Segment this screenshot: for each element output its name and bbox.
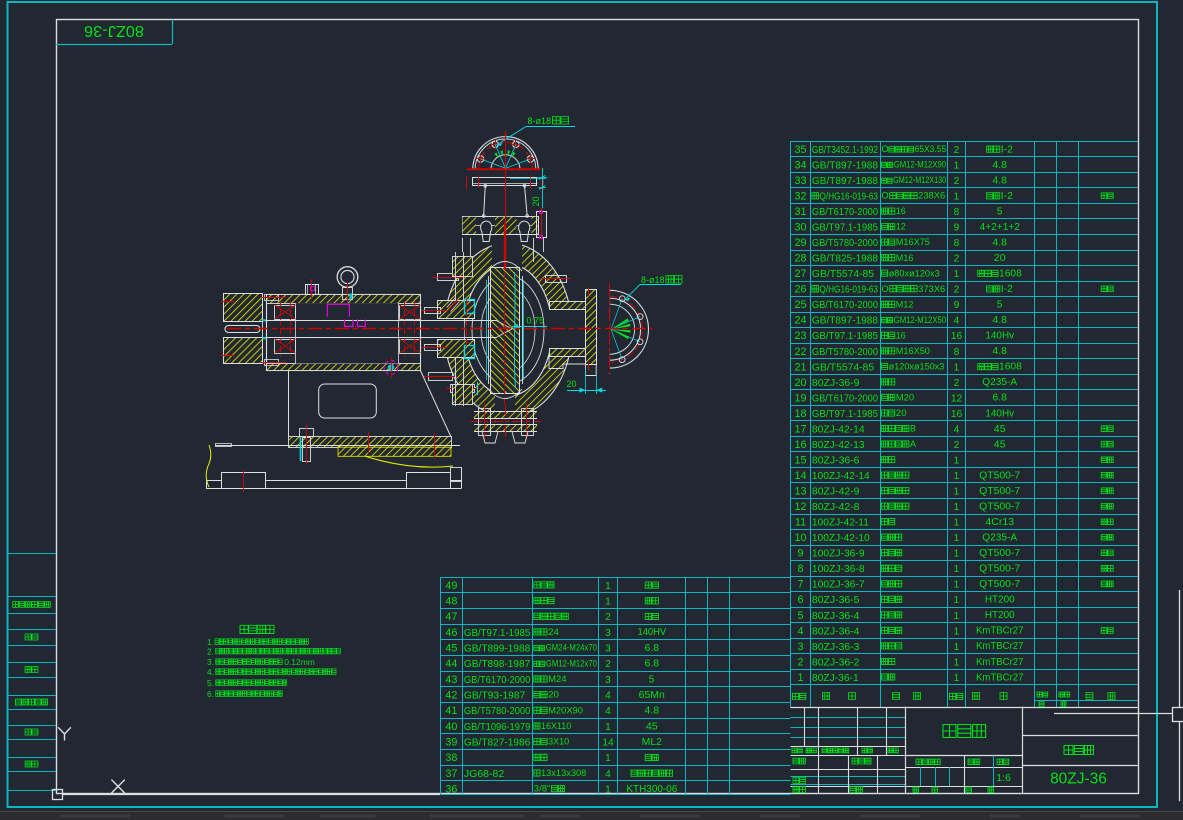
svg-text:1: 1 <box>954 533 960 544</box>
svg-text:16: 16 <box>896 330 906 340</box>
svg-text:3/8": 3/8" <box>534 784 551 794</box>
svg-text:Q235-A: Q235-A <box>982 377 1017 388</box>
svg-text:1.: 1. <box>207 637 214 647</box>
svg-text:1: 1 <box>954 564 960 575</box>
svg-text:45: 45 <box>646 721 658 732</box>
svg-text:16: 16 <box>951 409 963 420</box>
svg-text:1: 1 <box>954 269 960 280</box>
svg-text:1: 1 <box>954 642 960 653</box>
svg-text:QT500-7: QT500-7 <box>979 579 1020 590</box>
svg-text:KmTBCr27: KmTBCr27 <box>976 626 1024 637</box>
svg-text:25: 25 <box>794 299 806 311</box>
svg-text:4.8: 4.8 <box>992 160 1007 171</box>
svg-text:12: 12 <box>794 501 806 513</box>
svg-text:6.8: 6.8 <box>992 393 1007 404</box>
svg-text:11: 11 <box>795 517 806 529</box>
svg-text:80ZJ-36-3: 80ZJ-36-3 <box>812 642 860 653</box>
svg-text:1: 1 <box>605 597 611 608</box>
svg-text:GB/T97.1-1985: GB/T97.1-1985 <box>812 409 878 420</box>
svg-text:65Mn: 65Mn <box>639 690 665 701</box>
svg-text:QT500-7: QT500-7 <box>979 470 1020 481</box>
svg-text:Q/HG16-019-63: Q/HG16-019-63 <box>819 285 878 296</box>
svg-text:80ZJ-36-4: 80ZJ-36-4 <box>812 626 860 637</box>
svg-text:GB/T6170-2000: GB/T6170-2000 <box>464 675 531 686</box>
svg-text:4: 4 <box>954 316 960 327</box>
svg-text:O: O <box>882 284 889 294</box>
svg-text:20: 20 <box>794 377 806 389</box>
svg-text:B: B <box>910 424 916 434</box>
svg-text:GB/T97.1-1985: GB/T97.1-1985 <box>812 331 878 342</box>
svg-text:32: 32 <box>794 191 806 203</box>
svg-text:36: 36 <box>445 784 457 796</box>
svg-text:49: 49 <box>445 580 457 592</box>
svg-text:GB/T1096-1979: GB/T1096-1979 <box>464 722 531 733</box>
svg-text:GB/T5574-85: GB/T5574-85 <box>812 362 875 373</box>
svg-text:8-ø18: 8-ø18 <box>528 116 552 126</box>
svg-text:QT500-7: QT500-7 <box>979 486 1020 497</box>
svg-text:41: 41 <box>445 705 457 717</box>
svg-text:45: 45 <box>445 643 457 655</box>
svg-text:9: 9 <box>954 223 960 234</box>
svg-text:GB/T97.1-1985: GB/T97.1-1985 <box>812 223 878 234</box>
svg-text:JG68-82: JG68-82 <box>464 769 505 780</box>
svg-text:100ZJ-36-9: 100ZJ-36-9 <box>812 549 865 560</box>
svg-text:9: 9 <box>797 548 803 560</box>
svg-text:80ZJ-36-2: 80ZJ-36-2 <box>812 657 860 668</box>
svg-text:6.8: 6.8 <box>645 643 660 654</box>
svg-text:1: 1 <box>954 580 960 591</box>
svg-text:4.8: 4.8 <box>992 315 1007 326</box>
svg-text:3.: 3. <box>207 657 214 667</box>
svg-text:40: 40 <box>445 721 457 733</box>
svg-text:80ZJ-42-8: 80ZJ-42-8 <box>812 502 860 513</box>
svg-text:80ZJ-42-14: 80ZJ-42-14 <box>812 424 865 435</box>
svg-text:45: 45 <box>994 424 1006 435</box>
svg-text:GB/T5780-2000: GB/T5780-2000 <box>812 347 878 358</box>
svg-text:4+2+1+2: 4+2+1+2 <box>980 222 1021 233</box>
svg-text:4: 4 <box>797 625 803 637</box>
svg-text:4: 4 <box>605 706 611 717</box>
svg-text:1: 1 <box>954 626 960 637</box>
svg-text:46: 46 <box>445 627 457 639</box>
svg-text:A: A <box>910 439 917 449</box>
svg-text:8: 8 <box>954 347 960 358</box>
svg-text:14: 14 <box>602 738 614 749</box>
svg-text:GB/T5780-2000: GB/T5780-2000 <box>812 238 878 249</box>
svg-text:20: 20 <box>896 408 907 418</box>
svg-text:4.8: 4.8 <box>992 175 1007 186</box>
svg-text:1: 1 <box>605 785 611 796</box>
svg-text:33: 33 <box>794 175 806 187</box>
svg-text:QT500-7: QT500-7 <box>979 502 1020 513</box>
svg-text:27: 27 <box>794 268 806 280</box>
svg-text:10: 10 <box>794 532 806 544</box>
svg-text:1: 1 <box>954 487 960 498</box>
svg-text:3: 3 <box>605 628 611 639</box>
svg-text:1: 1 <box>605 581 611 592</box>
svg-text:1608: 1608 <box>999 362 1022 373</box>
svg-text:3: 3 <box>797 641 803 653</box>
svg-text:2: 2 <box>954 145 960 156</box>
svg-text:4.8: 4.8 <box>992 237 1007 248</box>
svg-text:O: O <box>882 191 889 201</box>
svg-text:GB/T897-1988: GB/T897-1988 <box>812 176 878 187</box>
svg-text:GB/T827-1986: GB/T827-1986 <box>464 738 531 749</box>
svg-text:1: 1 <box>954 160 960 171</box>
svg-text:QT500-7: QT500-7 <box>979 548 1020 559</box>
svg-text:38: 38 <box>445 752 457 764</box>
svg-text:GB/T825-1988: GB/T825-1988 <box>812 254 878 265</box>
svg-text:4: 4 <box>605 691 611 702</box>
svg-text:GB/T899-1988: GB/T899-1988 <box>464 644 531 655</box>
svg-text:M20X90: M20X90 <box>548 705 583 715</box>
svg-text:4.8: 4.8 <box>645 706 660 717</box>
svg-text:I-2: I-2 <box>1001 191 1013 202</box>
svg-text:M12: M12 <box>896 299 914 309</box>
svg-text:ø80xø120x3: ø80xø120x3 <box>889 268 940 278</box>
svg-text:KTH300-06: KTH300-06 <box>626 784 677 795</box>
svg-text:8: 8 <box>954 238 960 249</box>
svg-text:14: 14 <box>794 470 806 482</box>
svg-text:1: 1 <box>797 672 803 684</box>
svg-text:3: 3 <box>605 644 611 655</box>
svg-text:I-2: I-2 <box>1001 284 1013 295</box>
svg-text:O: O <box>882 144 889 154</box>
svg-text:HT200: HT200 <box>985 610 1015 621</box>
svg-text:GB/T97.1-1985: GB/T97.1-1985 <box>464 628 531 639</box>
svg-text:0.75: 0.75 <box>527 316 545 326</box>
svg-text:1: 1 <box>954 518 960 529</box>
svg-text:12: 12 <box>951 393 963 404</box>
svg-text:15: 15 <box>794 455 806 467</box>
svg-text:2: 2 <box>797 656 803 668</box>
svg-text:80ZJ-36-9: 80ZJ-36-9 <box>812 378 860 389</box>
svg-text:37: 37 <box>445 768 457 780</box>
svg-text:23: 23 <box>794 330 806 342</box>
svg-text:M16X75: M16X75 <box>896 237 930 247</box>
svg-text:100ZJ-36-7: 100ZJ-36-7 <box>812 580 865 591</box>
svg-text:65X3.55: 65X3.55 <box>915 144 947 154</box>
svg-text:4Cr13: 4Cr13 <box>985 517 1014 528</box>
svg-text:1: 1 <box>954 502 960 513</box>
svg-text:M16X50: M16X50 <box>896 346 930 356</box>
svg-text:45: 45 <box>994 439 1006 450</box>
svg-text:9: 9 <box>954 300 960 311</box>
svg-text:5: 5 <box>997 206 1003 217</box>
svg-text:8-ø18: 8-ø18 <box>641 275 665 285</box>
svg-text:1:6: 1:6 <box>996 772 1011 784</box>
svg-text:17: 17 <box>794 423 806 435</box>
svg-text:42: 42 <box>445 690 457 702</box>
svg-text:43: 43 <box>445 674 457 686</box>
svg-text:1: 1 <box>954 192 960 203</box>
svg-text:140Hv: 140Hv <box>985 331 1015 342</box>
svg-text:80ZJ-42-13: 80ZJ-42-13 <box>812 440 865 451</box>
svg-text:6.: 6. <box>207 689 214 699</box>
svg-text:21: 21 <box>794 361 806 373</box>
svg-text:80ZJ-36-6: 80ZJ-36-6 <box>812 456 860 467</box>
svg-text:20: 20 <box>567 379 577 389</box>
svg-text:1: 1 <box>954 673 960 684</box>
svg-text:GB/T897-1988: GB/T897-1988 <box>812 316 878 327</box>
svg-text:80ZJ-42-9: 80ZJ-42-9 <box>812 487 860 498</box>
svg-text:2: 2 <box>605 659 611 670</box>
svg-text:GM12-M12X130: GM12-M12X130 <box>893 175 946 185</box>
svg-text:28: 28 <box>794 253 806 265</box>
svg-text:30: 30 <box>794 222 806 234</box>
svg-text:GB/T3452.1-1992: GB/T3452.1-1992 <box>812 145 878 156</box>
svg-text:1: 1 <box>954 611 960 622</box>
svg-text:2: 2 <box>954 254 960 265</box>
svg-text:M24: M24 <box>548 674 566 684</box>
svg-text:1: 1 <box>954 471 960 482</box>
svg-text:M20: M20 <box>896 393 914 403</box>
svg-text:16: 16 <box>896 206 906 216</box>
svg-text:24: 24 <box>548 627 559 637</box>
svg-text:KmTBCr27: KmTBCr27 <box>976 657 1024 668</box>
svg-text:13: 13 <box>794 486 806 498</box>
svg-text:20: 20 <box>531 196 541 206</box>
svg-text:24: 24 <box>794 315 806 327</box>
svg-text:GB/T6170-2000: GB/T6170-2000 <box>812 300 878 311</box>
svg-text:12: 12 <box>896 222 906 232</box>
svg-text:16: 16 <box>951 331 963 342</box>
svg-text:29: 29 <box>794 237 806 249</box>
svg-text:2: 2 <box>605 612 611 623</box>
svg-text:4: 4 <box>605 769 611 780</box>
svg-text:100ZJ-42-11: 100ZJ-42-11 <box>812 518 869 529</box>
svg-text:8: 8 <box>954 207 960 218</box>
svg-text:GB/T5780-2000: GB/T5780-2000 <box>464 706 531 717</box>
svg-text:2: 2 <box>954 176 960 187</box>
svg-text:80ZJ-36-4: 80ZJ-36-4 <box>812 611 860 622</box>
svg-text:2: 2 <box>954 378 960 389</box>
svg-text:22: 22 <box>794 346 806 358</box>
svg-text:3X10: 3X10 <box>548 737 569 747</box>
svg-text:ML2: ML2 <box>642 737 663 748</box>
svg-text:48: 48 <box>445 596 457 608</box>
svg-text:100ZJ-36-8: 100ZJ-36-8 <box>812 564 865 575</box>
svg-text:35: 35 <box>794 144 806 156</box>
svg-text:GM12-M12X90: GM12-M12X90 <box>894 160 946 170</box>
svg-text:4.8: 4.8 <box>992 346 1007 357</box>
svg-text:80ZJ-36: 80ZJ-36 <box>1050 771 1107 788</box>
svg-text:GB/T898-1987: GB/T898-1987 <box>464 659 531 670</box>
svg-text:20: 20 <box>548 690 559 700</box>
svg-text:1: 1 <box>605 753 611 764</box>
svg-text:GM12-M12x70: GM12-M12x70 <box>546 658 597 668</box>
svg-text:QT500-7: QT500-7 <box>979 564 1020 575</box>
svg-text:GB/T6170-2000: GB/T6170-2000 <box>812 393 878 404</box>
svg-text:4: 4 <box>954 424 960 435</box>
svg-text:GB/T5574-85: GB/T5574-85 <box>812 269 875 280</box>
svg-text:ø120xø150x3: ø120xø150x3 <box>889 362 945 372</box>
svg-text:KmTBCr27: KmTBCr27 <box>976 641 1024 652</box>
svg-text:4.: 4. <box>207 667 214 677</box>
svg-text:140HV: 140HV <box>638 627 667 638</box>
svg-text:I-2: I-2 <box>1001 144 1013 155</box>
svg-text:373X6: 373X6 <box>918 284 945 294</box>
svg-text:80ZJ-36-1: 80ZJ-36-1 <box>812 673 859 684</box>
svg-text:2: 2 <box>954 285 960 296</box>
svg-text:GB/T6170-2000: GB/T6170-2000 <box>812 207 878 218</box>
svg-text:GB/T897-1988: GB/T897-1988 <box>812 160 878 171</box>
svg-text:HT200: HT200 <box>985 595 1015 606</box>
svg-text:8: 8 <box>797 563 803 575</box>
svg-text:Q/HG16-019-63: Q/HG16-019-63 <box>819 192 878 203</box>
svg-text:1: 1 <box>605 722 611 733</box>
svg-text:19: 19 <box>794 392 806 404</box>
svg-text:5: 5 <box>797 610 803 622</box>
svg-text:1: 1 <box>954 595 960 606</box>
svg-text:100ZJ-42-14: 100ZJ-42-14 <box>812 471 870 482</box>
svg-text:1608: 1608 <box>999 269 1022 280</box>
svg-text:5: 5 <box>649 674 655 685</box>
svg-text:GM12-M12X50: GM12-M12X50 <box>894 315 946 325</box>
svg-text:5: 5 <box>997 300 1003 311</box>
svg-text:13x13x308: 13x13x308 <box>541 768 586 778</box>
svg-text:5.: 5. <box>207 678 214 688</box>
svg-text:238X6: 238X6 <box>918 191 945 201</box>
svg-text:16X110: 16X110 <box>541 721 571 731</box>
svg-text:1: 1 <box>954 549 960 560</box>
svg-text:Q235-A: Q235-A <box>982 533 1017 544</box>
svg-text:39: 39 <box>445 737 457 749</box>
svg-text:KmTBCr27: KmTBCr27 <box>976 672 1024 683</box>
svg-text:GB/T93-1987: GB/T93-1987 <box>464 691 526 702</box>
svg-text:GM24-M24x70: GM24-M24x70 <box>546 643 597 653</box>
svg-text:47: 47 <box>445 611 457 623</box>
svg-text:80ZJ-36-5: 80ZJ-36-5 <box>812 595 860 606</box>
svg-text:140Hv: 140Hv <box>985 408 1015 419</box>
svg-text:1: 1 <box>954 657 960 668</box>
svg-text:20: 20 <box>994 253 1006 264</box>
svg-text:2: 2 <box>954 440 960 451</box>
svg-text:44: 44 <box>445 658 457 670</box>
svg-text:80ZJ-36: 80ZJ-36 <box>84 22 144 39</box>
svg-text:16: 16 <box>794 439 806 451</box>
svg-text:7: 7 <box>797 579 803 591</box>
svg-text:0.12mm: 0.12mm <box>284 657 315 667</box>
svg-text:18: 18 <box>794 408 806 420</box>
svg-text:6: 6 <box>797 594 803 606</box>
svg-text:26: 26 <box>794 284 806 296</box>
svg-text:6.8: 6.8 <box>645 659 660 670</box>
svg-text:100ZJ-42-10: 100ZJ-42-10 <box>812 533 870 544</box>
svg-text:34: 34 <box>794 159 806 171</box>
svg-text:2.: 2. <box>207 647 214 657</box>
svg-text:1: 1 <box>954 456 960 467</box>
svg-text:M16: M16 <box>896 253 914 263</box>
svg-text:1: 1 <box>954 362 960 373</box>
svg-text:3: 3 <box>605 675 611 686</box>
svg-text:31: 31 <box>794 206 806 218</box>
